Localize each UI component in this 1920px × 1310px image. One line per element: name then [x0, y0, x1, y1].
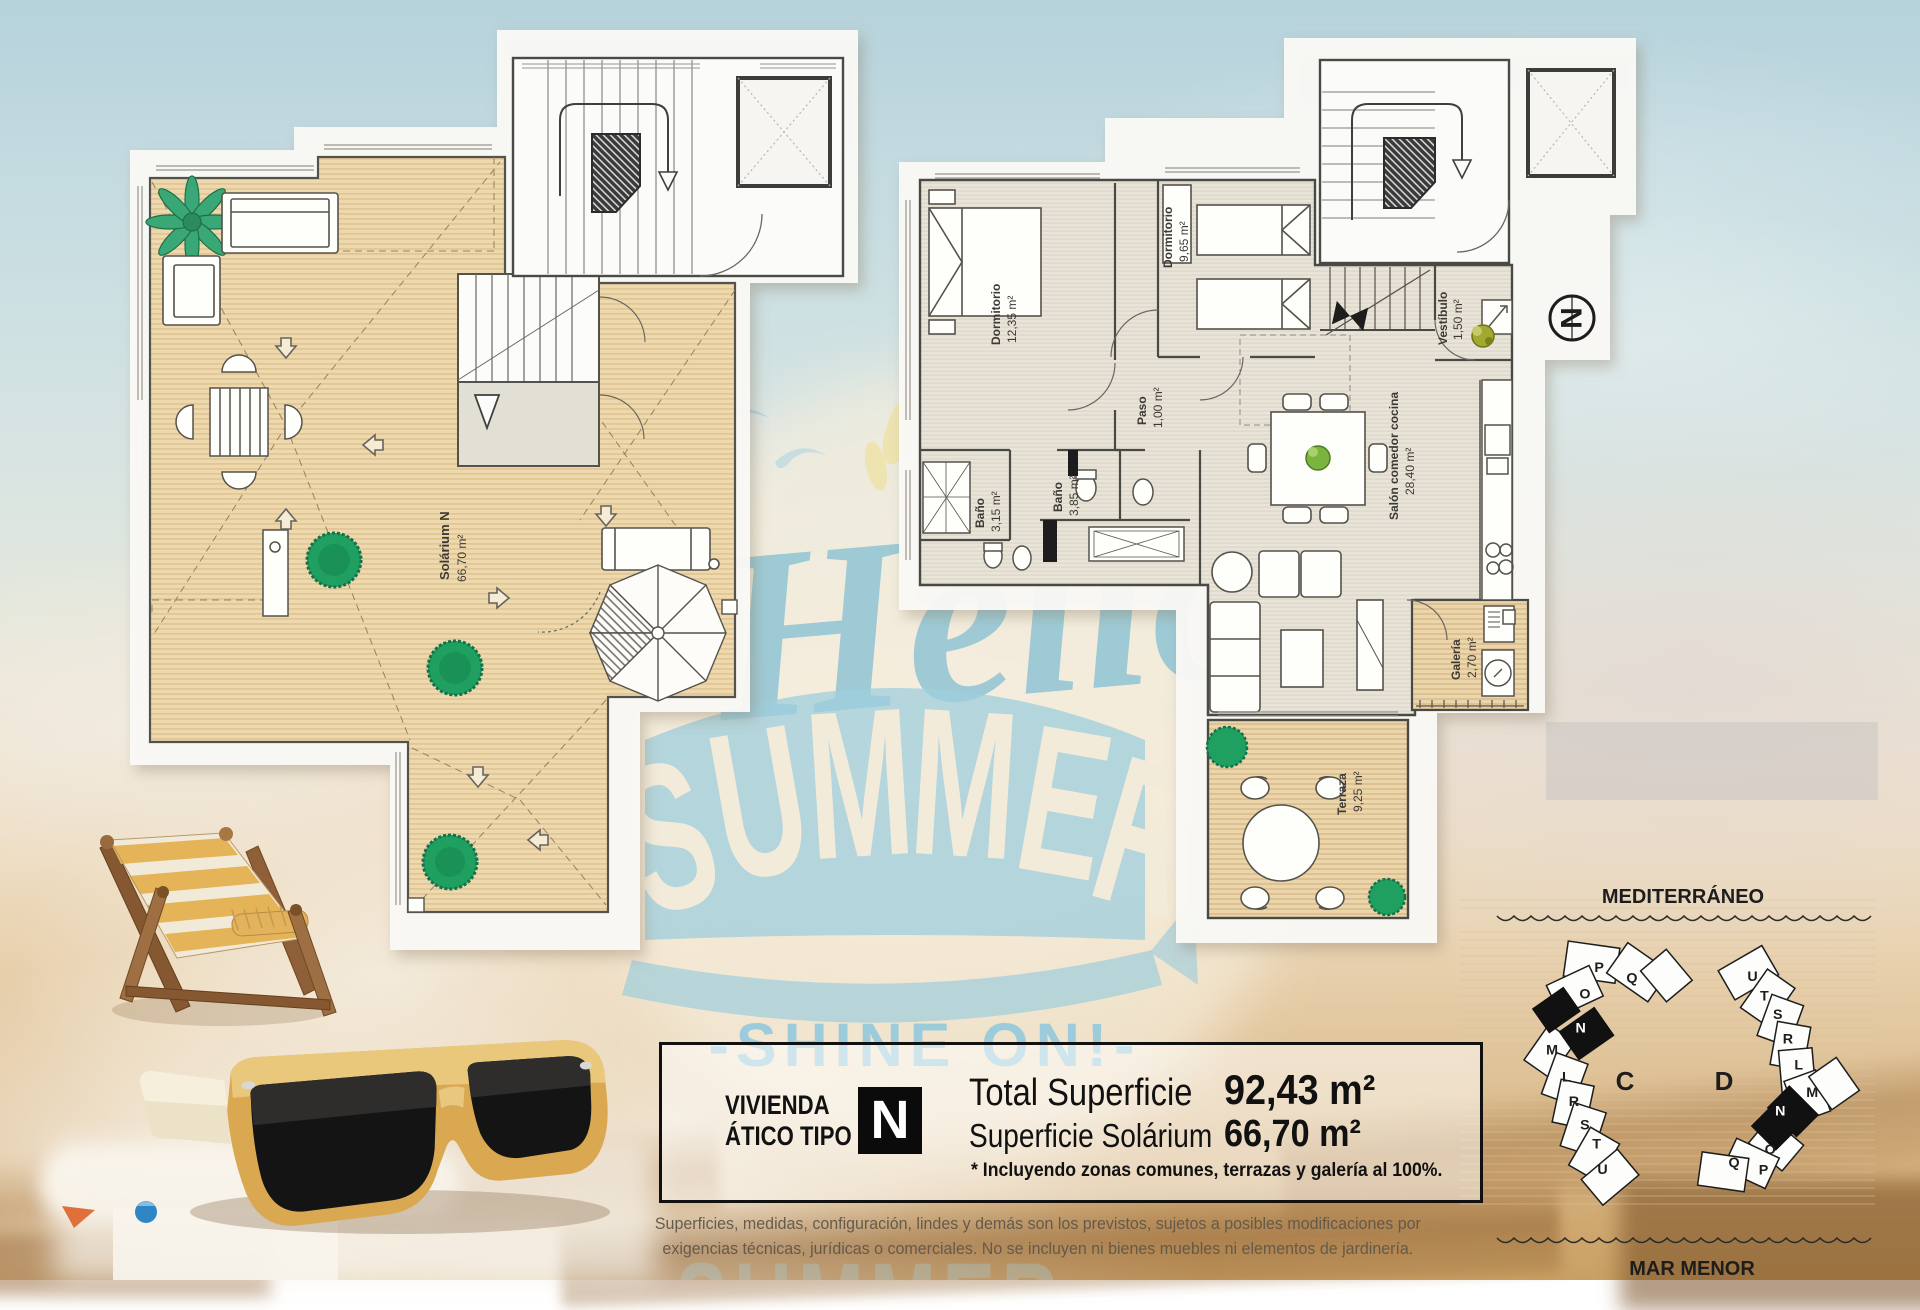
- svg-text:L: L: [1562, 1069, 1571, 1085]
- svg-text:Baño: Baño: [1051, 482, 1065, 512]
- svg-text:Baño: Baño: [973, 498, 987, 528]
- svg-text:R: R: [1783, 1031, 1794, 1047]
- svg-text:1,50 m²: 1,50 m²: [1451, 299, 1465, 340]
- svg-text:1,00 m²: 1,00 m²: [1151, 387, 1165, 428]
- svg-text:MAR MENOR: MAR MENOR: [1629, 1258, 1755, 1280]
- svg-text:R: R: [1569, 1094, 1580, 1110]
- svg-text:3,15 m²: 3,15 m²: [989, 491, 1003, 532]
- svg-text:S: S: [1580, 1117, 1590, 1133]
- svg-text:Dormitorio: Dormitorio: [989, 284, 1003, 345]
- svg-text:Salón comedor cocina: Salón comedor cocina: [1387, 392, 1401, 520]
- svg-text:MEDITERRÁNEO: MEDITERRÁNEO: [1602, 885, 1764, 908]
- svg-text:Dormitorio: Dormitorio: [1161, 207, 1175, 268]
- svg-text:N: N: [1576, 1021, 1586, 1037]
- svg-text:9,25 m²: 9,25 m²: [1351, 771, 1365, 812]
- svg-text:M: M: [800, 663, 919, 904]
- svg-text:C: C: [1616, 1066, 1635, 1096]
- svg-text:9,65 m²: 9,65 m²: [1177, 221, 1191, 262]
- svg-text:66,70 m²: 66,70 m²: [455, 535, 469, 582]
- svg-text:Vestíbulo: Vestíbulo: [1436, 292, 1450, 345]
- svg-text:28,40 m²: 28,40 m²: [1403, 448, 1417, 495]
- svg-text:Paso: Paso: [1135, 396, 1149, 425]
- svg-text:Galería: Galería: [1449, 639, 1463, 680]
- svg-text:M: M: [905, 663, 1024, 904]
- svg-text:U: U: [1747, 969, 1757, 985]
- svg-text:O: O: [1765, 1142, 1776, 1158]
- svg-text:P: P: [1594, 960, 1604, 976]
- svg-text:M: M: [1806, 1085, 1818, 1101]
- svg-text:N: N: [1775, 1104, 1785, 1120]
- svg-text:Solárium N: Solárium N: [437, 511, 452, 580]
- svg-text:T: T: [1592, 1137, 1601, 1153]
- svg-text:O: O: [1579, 986, 1590, 1002]
- svg-text:3,85 m²: 3,85 m²: [1067, 475, 1081, 516]
- svg-text:P: P: [1759, 1162, 1769, 1178]
- svg-text:12,35 m²: 12,35 m²: [1005, 296, 1019, 343]
- svg-text:Q: Q: [1729, 1155, 1740, 1171]
- svg-text:U: U: [1597, 1162, 1607, 1178]
- svg-text:S: S: [1773, 1007, 1783, 1023]
- svg-text:L: L: [1794, 1057, 1803, 1073]
- svg-text:M: M: [1546, 1043, 1558, 1059]
- svg-text:T: T: [1760, 988, 1769, 1004]
- svg-text:Q: Q: [1626, 970, 1637, 986]
- svg-text:Terraza: Terraza: [1335, 773, 1349, 815]
- svg-text:D: D: [1715, 1066, 1734, 1096]
- svg-text:2,70 m²: 2,70 m²: [1465, 637, 1479, 678]
